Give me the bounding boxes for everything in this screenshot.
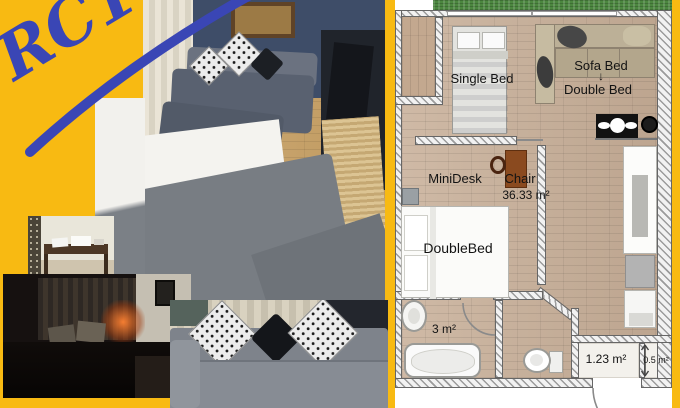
doors-overlay	[395, 0, 672, 408]
label-single-bed: Single Bed	[451, 71, 514, 86]
label-area-bathroom: 3 m²	[432, 322, 456, 336]
bathroom-door-arc	[463, 303, 495, 335]
label-double-bed: Double Bed	[564, 82, 632, 97]
entrance-door-arc	[593, 388, 642, 408]
label-area-entry: 1.23 m²	[586, 352, 627, 366]
floorplan-panel: Single Bed Sofa Bed ↓ Double Bed MiniDes…	[395, 0, 672, 408]
label-doublebed-room: DoubleBed	[423, 240, 492, 256]
label-convert-arrow: ↓	[598, 69, 604, 83]
label-area-closet: 0.5 m²	[643, 355, 669, 365]
listing-image: RC1#	[0, 0, 680, 408]
label-chair: Chair	[504, 171, 535, 186]
label-mini-desk: MiniDesk	[428, 171, 481, 186]
photo-collage-panel: RC1#	[0, 0, 390, 408]
label-area-main: 36.33 m²	[502, 188, 549, 202]
